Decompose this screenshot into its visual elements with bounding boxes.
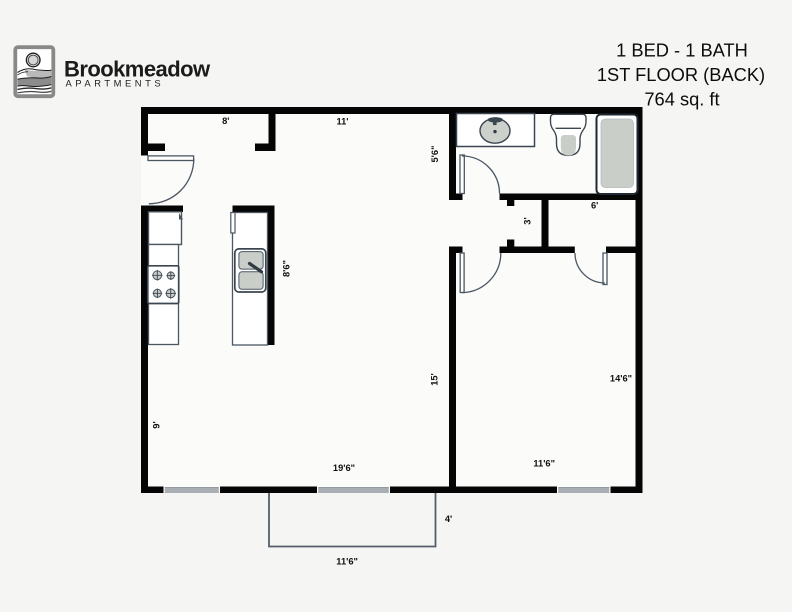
svg-text:11': 11' <box>336 116 348 126</box>
svg-text:19'6": 19'6" <box>333 463 355 473</box>
svg-text:APARTMENTS: APARTMENTS <box>66 78 165 89</box>
svg-text:15': 15' <box>430 373 440 386</box>
svg-text:764 sq. ft: 764 sq. ft <box>644 88 719 109</box>
svg-text:9': 9' <box>152 421 162 428</box>
svg-text:14'6": 14'6" <box>610 374 632 384</box>
svg-text:8': 8' <box>222 116 229 126</box>
svg-text:11'6": 11'6" <box>533 459 555 469</box>
svg-text:8'6": 8'6" <box>282 260 292 277</box>
svg-text:3': 3' <box>523 217 533 224</box>
svg-text:1 BED - 1 BATH: 1 BED - 1 BATH <box>616 40 748 61</box>
svg-text:4': 4' <box>445 514 452 524</box>
svg-text:6': 6' <box>591 201 598 211</box>
svg-text:11'6": 11'6" <box>336 557 358 567</box>
svg-text:5'6": 5'6" <box>430 146 440 163</box>
svg-text:1ST FLOOR (BACK): 1ST FLOOR (BACK) <box>597 64 765 85</box>
